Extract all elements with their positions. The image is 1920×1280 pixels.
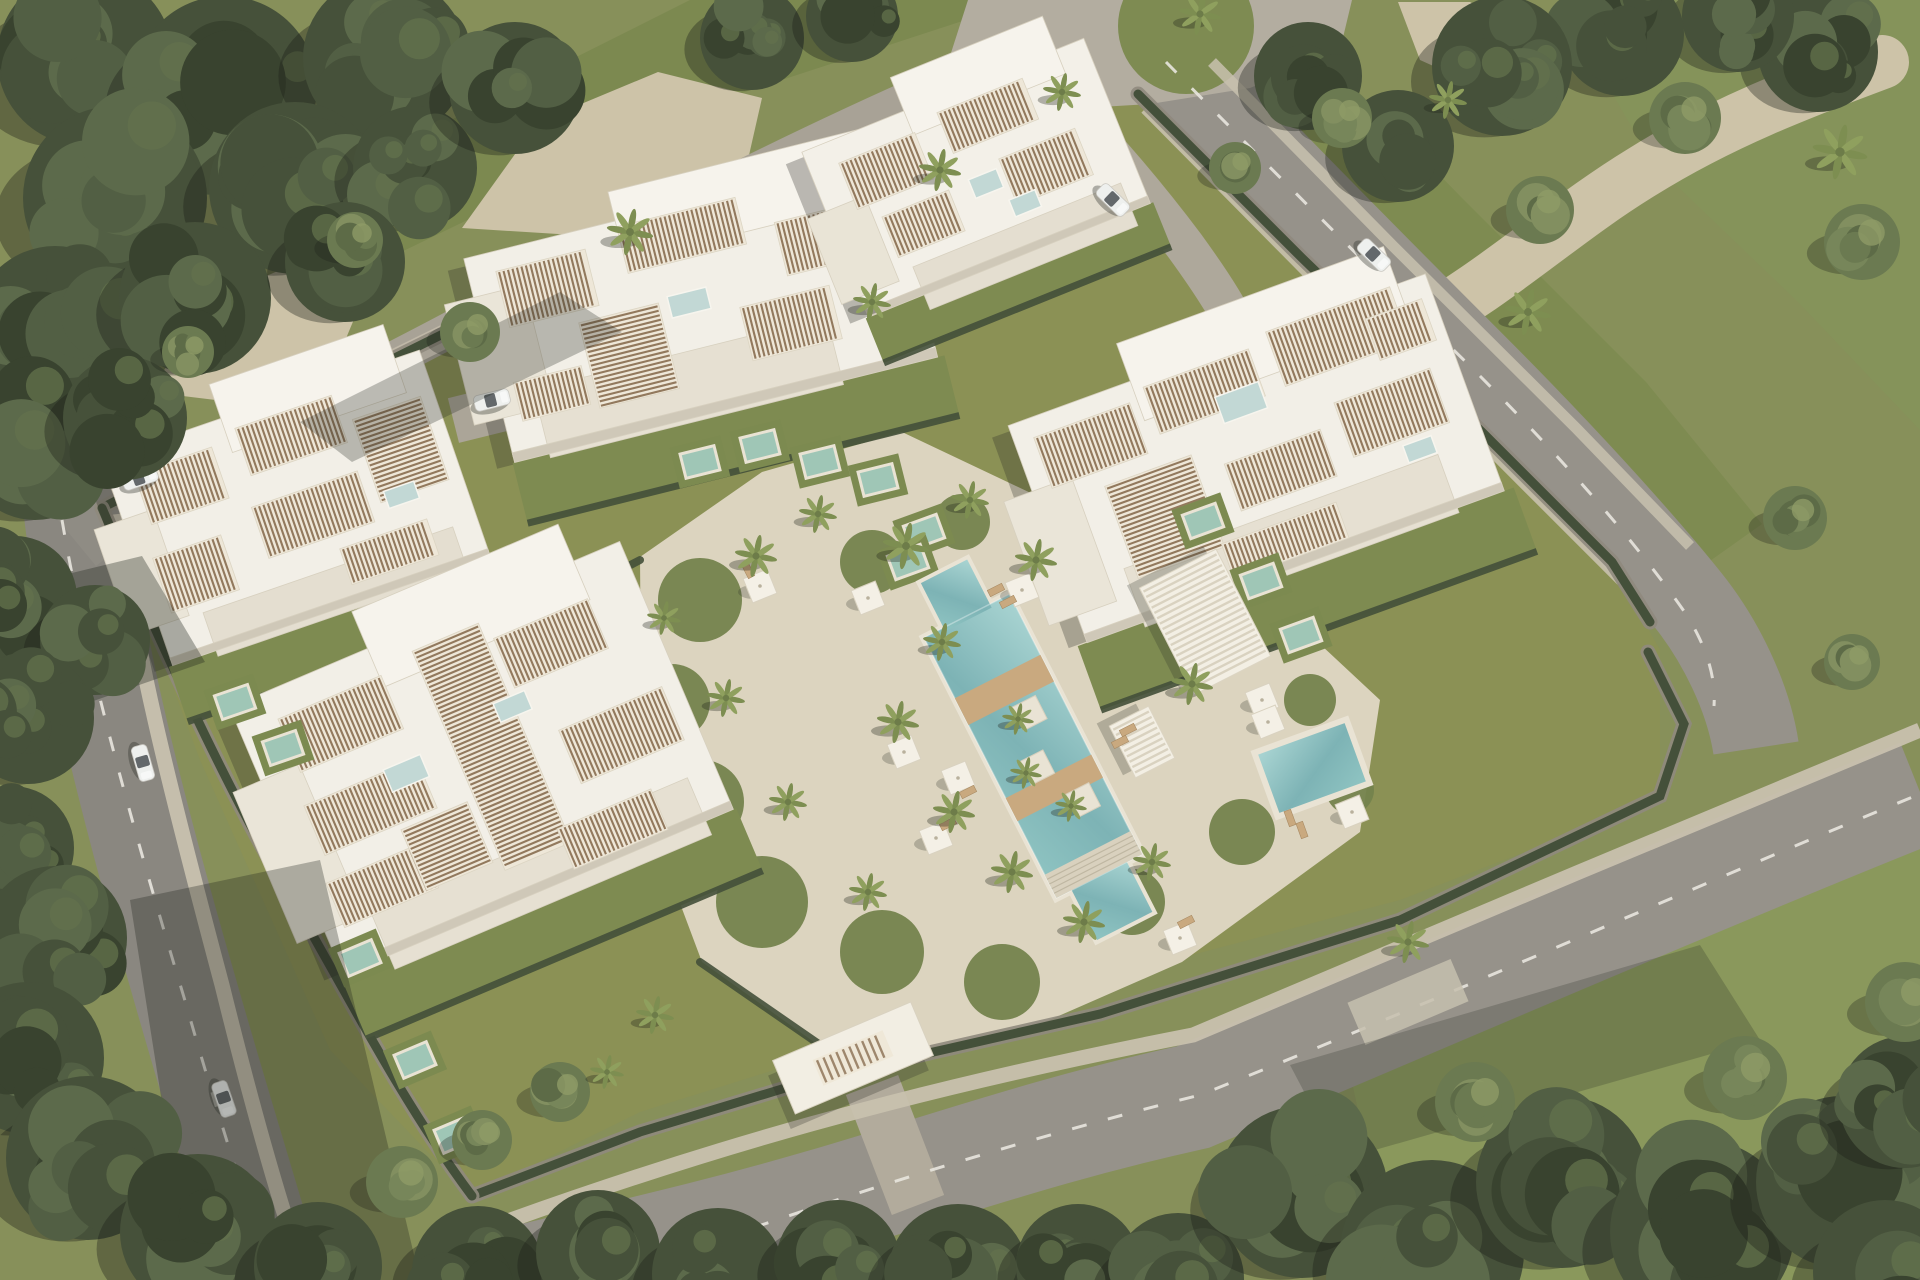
garden-bed [840,910,924,994]
tree-highlight [1471,1078,1499,1106]
palm-crown [1524,308,1532,316]
residential-complex-aerial-view [0,0,1920,1280]
palm-crown [936,166,943,173]
canopy-highlight [882,9,896,23]
tree-highlight [1792,499,1814,521]
parasol-pole [1020,588,1024,592]
palm-crown [785,799,791,805]
parasol-pole [1350,810,1354,814]
canopy-highlight [944,1237,966,1259]
canopy-highlight [128,101,176,149]
tree-highlight [185,336,203,354]
canopy-blob [1719,34,1754,69]
parasol-pole [866,596,870,600]
tree-highlight [1537,190,1561,214]
tree-highlight [1741,1053,1770,1082]
canopy-blob [1489,0,1537,46]
canopy-highlight [4,716,26,738]
aerial-site-render [0,0,1920,1280]
tree-highlight [352,223,372,243]
tree-highlight [1681,96,1706,121]
tree-highlight [1339,100,1360,121]
canopy-highlight [1810,42,1839,71]
tree-highlight [479,1122,500,1143]
palm-crown [1080,918,1087,925]
parasol-pole [1260,698,1264,702]
canopy-blob [1379,133,1435,189]
palm-crown [1445,97,1451,103]
canopy-highlight [602,1226,631,1255]
canopy-highlight [159,381,179,401]
canopy-highlight [191,262,215,286]
parasol-pole [902,750,906,754]
tree-blob [176,352,199,375]
parasol-pole [934,836,938,840]
palm-crown [1835,147,1844,156]
canopy-highlight [399,18,440,59]
tree-highlight [557,1074,578,1095]
canopy-highlight [1549,1099,1592,1142]
palm-crown [894,718,901,725]
canopy-highlight [420,134,437,151]
canopy-blob [70,414,145,489]
palm-crown [652,1012,658,1018]
canopy-highlight [27,655,54,682]
parasol-pole [1178,936,1182,940]
palm-crown [1032,556,1039,563]
tree-highlight [1232,152,1250,170]
garden-bed [1209,799,1275,865]
canopy-highlight [415,185,443,213]
tree-highlight [467,314,488,335]
tree-highlight [1858,219,1885,246]
palm-crown [950,808,957,815]
palm-crown [1196,10,1203,17]
palm-crown [661,615,667,621]
garden-bed [1284,674,1336,726]
canopy-highlight [20,833,45,858]
palm-crown [815,511,821,517]
canopy-highlight [1482,47,1513,78]
canopy-highlight [115,356,143,384]
canopy-highlight [98,614,119,635]
palm-crown [604,1069,610,1075]
palm-crown [1188,680,1195,687]
palm-crown [1149,859,1155,865]
palm-crown [1023,770,1028,775]
canopy-highlight [1422,1214,1450,1242]
canopy-blob [1604,5,1647,48]
palm-crown [939,639,945,645]
canopy-highlight [765,31,778,44]
canopy-highlight [26,367,64,405]
tree-highlight [1849,645,1869,665]
palm-crown [902,542,910,550]
palm-crown [1059,89,1065,95]
palm-crown [1404,938,1411,945]
palm-crown [723,695,729,701]
garden-bed [964,944,1040,1020]
canopy-blob [48,681,94,727]
canopy-highlight [50,897,83,930]
parasol-pole [956,776,960,780]
palm-crown [1008,868,1015,875]
palm-crown [865,889,871,895]
canopy-highlight [509,73,527,91]
tree-highlight [398,1160,423,1185]
canopy-highlight [202,1196,227,1221]
canopy-blob [1198,1145,1292,1239]
canopy-highlight [385,141,402,158]
palm-crown [1015,716,1020,721]
palm-crown [967,497,973,503]
parasol-pole [758,584,762,588]
palm-crown [752,552,759,559]
canopy-highlight [693,1230,716,1253]
canopy-highlight [1458,51,1476,69]
palm-crown [626,228,634,236]
parasol-pole [1266,720,1270,724]
canopy-highlight [1039,1240,1063,1264]
palm-crown [1068,803,1073,808]
palm-crown [869,299,875,305]
